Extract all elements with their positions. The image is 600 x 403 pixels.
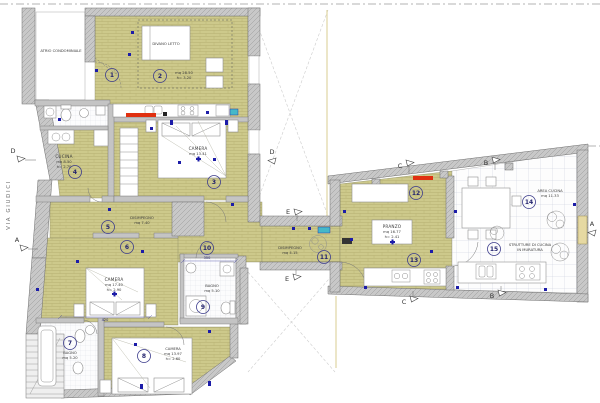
svg-text:10: 10 <box>203 245 211 252</box>
svg-text:1: 1 <box>110 72 114 79</box>
chair <box>468 230 478 239</box>
kitchenette-counter <box>113 104 238 117</box>
svg-text:8: 8 <box>142 353 146 360</box>
window <box>249 56 259 84</box>
svg-text:CAMERA: CAMERA <box>105 277 124 282</box>
courtyard-upper <box>252 10 328 216</box>
svg-text:mq 5.20: mq 5.20 <box>62 356 78 360</box>
svg-text:B: B <box>490 292 494 300</box>
svg-text:mq 13.41: mq 13.41 <box>189 152 207 156</box>
nightstand <box>146 120 156 132</box>
svg-text:mq 11.33: mq 11.33 <box>541 194 559 198</box>
svg-text:2: 2 <box>158 73 162 80</box>
dimension-420: 420 <box>102 318 109 322</box>
svg-text:PRANZO: PRANZO <box>383 224 402 229</box>
svg-text:15: 15 <box>490 246 498 253</box>
svg-text:E: E <box>286 208 290 216</box>
wc <box>75 330 85 343</box>
section-marker-d-left: D <box>10 147 36 162</box>
svg-text:mq 4.15: mq 4.15 <box>282 251 298 255</box>
divano-letto-label: DIVANO LETTO <box>152 42 179 46</box>
kitchen-counter <box>364 268 446 286</box>
svg-text:h= 2.41: h= 2.41 <box>385 235 400 239</box>
svg-text:A: A <box>590 220 595 228</box>
svg-text:IN MURATURA: IN MURATURA <box>517 248 543 252</box>
floor-plan-canvas: VIA GIUDICI <box>0 0 600 403</box>
svg-text:STRUTTURE DI CUCINA: STRUTTURE DI CUCINA <box>509 243 552 247</box>
svg-text:CAMERA: CAMERA <box>189 146 208 151</box>
svg-text:h= 3.20: h= 3.20 <box>177 76 192 80</box>
side-table <box>206 58 223 72</box>
svg-text:h= 2.90: h= 2.90 <box>107 288 122 292</box>
svg-text:mq 16.77: mq 16.77 <box>383 230 401 234</box>
washing-machine <box>220 262 234 276</box>
section-marker-a-right: A <box>588 220 596 236</box>
wall-niche <box>578 216 587 244</box>
svg-text:5: 5 <box>106 224 110 231</box>
courtyard-lower <box>248 272 336 372</box>
svg-text:7: 7 <box>68 340 72 347</box>
wc <box>221 302 231 314</box>
chair <box>486 177 496 186</box>
svg-text:D: D <box>269 148 274 156</box>
svg-text:DISIMPEGNO: DISIMPEGNO <box>278 246 302 250</box>
nightstand <box>74 304 84 317</box>
svg-text:mq 7.40: mq 7.40 <box>134 221 150 225</box>
radiator-marker-red <box>126 113 156 117</box>
dimension-350: 350 <box>204 256 211 260</box>
washbasin <box>86 326 95 335</box>
svg-text:mq 28.50: mq 28.50 <box>175 71 193 75</box>
bathtub <box>38 326 56 386</box>
svg-text:E: E <box>285 275 289 283</box>
atrio-label: ATRIO CONDOMINIALE <box>40 49 82 53</box>
svg-text:C: C <box>402 298 407 306</box>
window <box>249 130 259 154</box>
cyan-appliance-marker <box>318 227 330 233</box>
chair <box>512 196 521 206</box>
svg-text:13: 13 <box>410 257 418 264</box>
atrio-floor <box>36 12 85 100</box>
black-marker <box>163 112 167 116</box>
svg-text:12: 12 <box>412 190 420 197</box>
side-table <box>206 76 223 88</box>
svg-text:h= 2.60: h= 2.60 <box>166 357 181 361</box>
svg-text:14: 14 <box>525 199 533 206</box>
chair <box>468 177 478 186</box>
kitchen-table <box>462 188 510 228</box>
svg-text:CAMERA: CAMERA <box>165 347 181 351</box>
section-marker-e-bottom: E <box>285 270 301 283</box>
cyan-appliance-marker <box>230 109 238 115</box>
svg-text:CUCINA: CUCINA <box>55 154 72 159</box>
svg-text:mq 8.50: mq 8.50 <box>56 160 72 164</box>
section-marker-d-court: D <box>268 148 276 164</box>
nightstand <box>146 304 156 317</box>
svg-text:C: C <box>398 162 403 170</box>
bidet <box>73 362 83 374</box>
svg-text:A: A <box>15 236 20 244</box>
svg-text:4: 4 <box>73 169 77 176</box>
svg-text:mq 17.40: mq 17.40 <box>105 283 123 287</box>
svg-text:mq 13.97: mq 13.97 <box>164 352 182 356</box>
svg-text:9: 9 <box>201 304 205 311</box>
svg-text:BAGNO: BAGNO <box>63 351 77 355</box>
radiator-marker-red <box>413 176 433 180</box>
svg-text:mq 5.10: mq 5.10 <box>204 289 220 293</box>
svg-text:B: B <box>484 159 488 167</box>
svg-text:3: 3 <box>212 179 216 186</box>
floorplan-screenshot: VIA GIUDICI <box>0 0 600 403</box>
nightstand <box>228 120 238 132</box>
svg-text:D: D <box>10 147 15 155</box>
sideboard <box>352 184 408 202</box>
flue-mass <box>172 202 204 236</box>
washbasin <box>186 263 196 273</box>
svg-text:BAGNO: BAGNO <box>205 284 219 288</box>
nightstand <box>100 380 111 393</box>
street-label: VIA GIUDICI <box>6 180 12 230</box>
svg-text:6: 6 <box>125 244 129 251</box>
svg-text:11: 11 <box>320 254 328 261</box>
wardrobe <box>120 128 138 196</box>
svg-text:DISIMPEGNO: DISIMPEGNO <box>130 216 154 220</box>
svg-text:AREA CUCINA: AREA CUCINA <box>537 189 563 193</box>
fridge <box>94 130 108 146</box>
